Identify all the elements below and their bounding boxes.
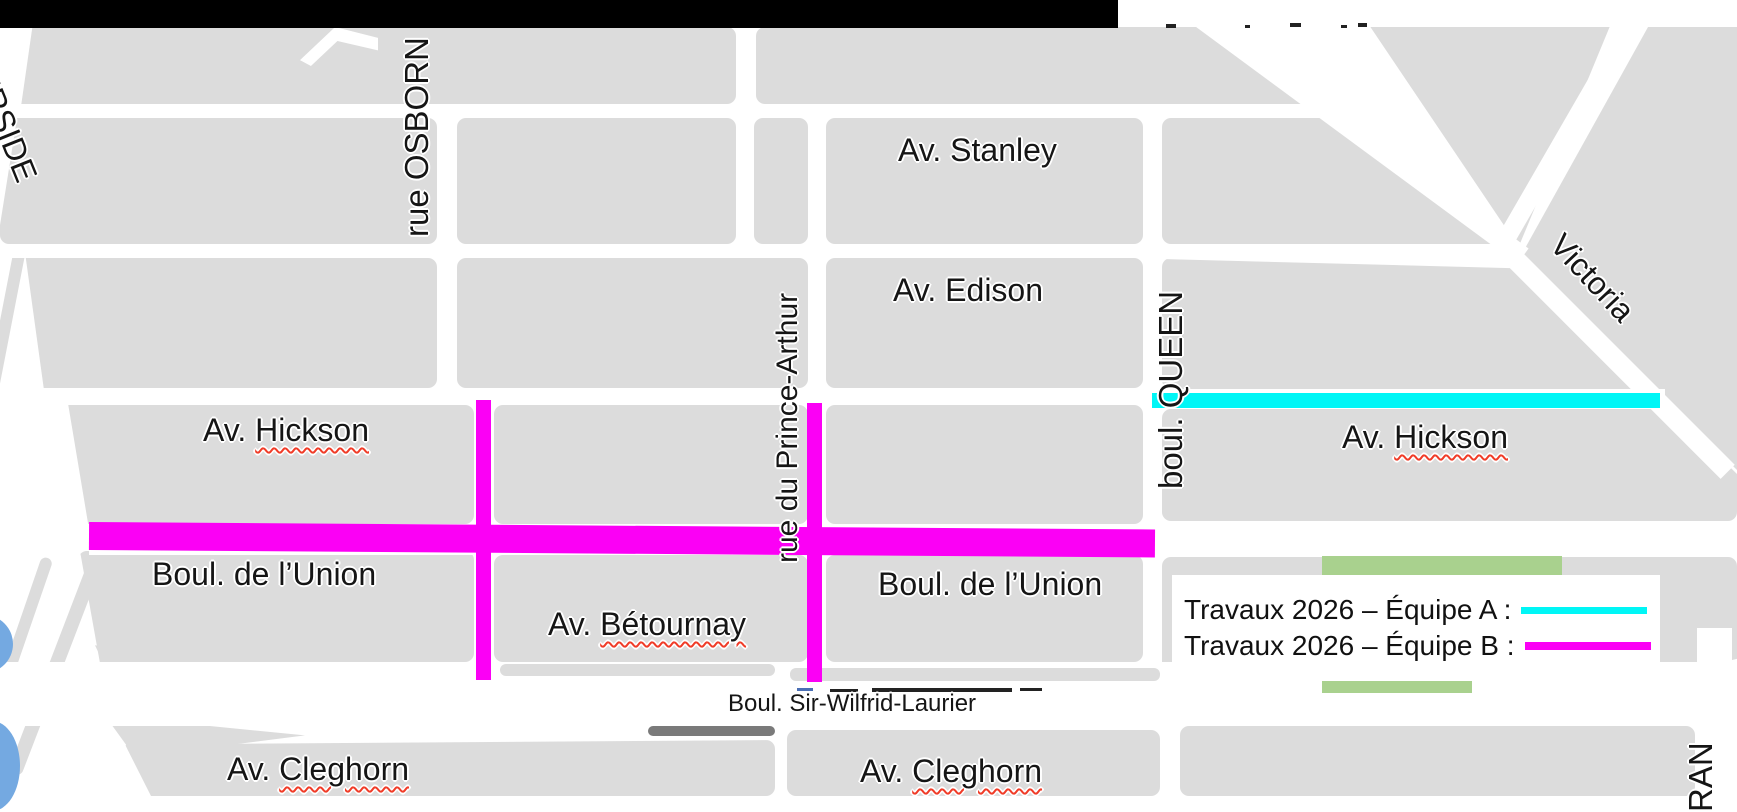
label-word: Cleghorn — [279, 751, 409, 787]
team-a-work-line — [1152, 393, 1660, 408]
clipped-text-remnant — [1166, 24, 1176, 28]
clipped-text-remnant — [1245, 25, 1250, 28]
street-label-ran: RAN — [1684, 682, 1719, 812]
street-label-betournay: Av. Bétournay — [548, 608, 746, 642]
label-word: Hickson — [1394, 419, 1508, 455]
street-label-union-left: Boul. de l’Union — [152, 558, 376, 592]
street-label-queen: boul. QUEEN — [1154, 263, 1189, 489]
city-block — [0, 258, 437, 388]
legend-line-magenta — [1525, 642, 1651, 650]
street-map: VERSIDE rue OSBORN Av. Stanley Av. Ediso… — [0, 0, 1737, 796]
street-vertical — [736, 27, 754, 257]
label-prefix: Av. — [1342, 419, 1394, 455]
street-label-hickson-left: Av. Hickson — [203, 414, 369, 448]
city-block — [0, 118, 437, 244]
street-label-hickson-right: Av. Hickson — [1342, 421, 1508, 455]
label-word: Bétournay — [600, 606, 746, 642]
street-horizontal — [0, 244, 1160, 258]
label-prefix: Av. — [203, 412, 255, 448]
label-word: Hickson — [255, 412, 369, 448]
road-closure-bar — [648, 726, 775, 736]
text-remnant — [1020, 688, 1042, 691]
street-label-cleghorn-left: Av. Cleghorn — [227, 753, 409, 787]
corridor-sliver — [790, 668, 1160, 681]
city-block — [754, 118, 808, 244]
street-label-stanley: Av. Stanley — [898, 134, 1057, 168]
street-label-edison: Av. Edison — [893, 274, 1043, 308]
city-block — [1180, 726, 1695, 796]
city-block-cleghorn-left — [125, 740, 775, 796]
street-label-laurier: Boul. Sir-Wilfrid-Laurier — [728, 691, 976, 716]
legend-row-team-b: Travaux 2026 – Équipe B : — [1184, 630, 1660, 662]
street-label-cleghorn-right: Av. Cleghorn — [860, 755, 1042, 789]
street-label-union-right: Boul. de l’Union — [878, 568, 1102, 602]
interchange-sliver — [0, 228, 30, 521]
label-prefix: Av. — [860, 753, 912, 789]
city-block — [494, 405, 808, 524]
city-block — [457, 258, 808, 388]
corridor-sliver — [500, 664, 775, 676]
title-bar — [0, 0, 1118, 28]
legend-line-cyan — [1521, 607, 1647, 614]
legend-label-team-a: Travaux 2026 – Équipe A : — [1184, 594, 1511, 626]
city-block — [826, 405, 1143, 524]
legend: Travaux 2026 – Équipe A : Travaux 2026 –… — [1172, 575, 1660, 681]
street-horizontal — [15, 104, 1315, 118]
team-b-work-line-vertical-east — [807, 403, 822, 682]
clipped-text-remnant — [1341, 25, 1347, 28]
clipped-text-remnant — [1290, 23, 1301, 27]
street-label-osborn: rue OSBORN — [400, 27, 435, 237]
legend-label-team-b: Travaux 2026 – Équipe B : — [1184, 630, 1515, 662]
street-osborn-road — [437, 104, 457, 392]
label-prefix: Av. — [548, 606, 600, 642]
legend-row-team-a: Travaux 2026 – Équipe A : — [1184, 594, 1660, 626]
team-b-work-line-vertical-west — [476, 400, 491, 680]
label-prefix: Av. — [227, 751, 279, 787]
city-block — [457, 118, 736, 244]
water-circle — [0, 721, 20, 811]
clipped-text-remnant — [1358, 23, 1367, 27]
label-word: Cleghorn — [912, 753, 1042, 789]
street-label-prince-arthur: rue du Prince-Arthur — [772, 271, 804, 563]
